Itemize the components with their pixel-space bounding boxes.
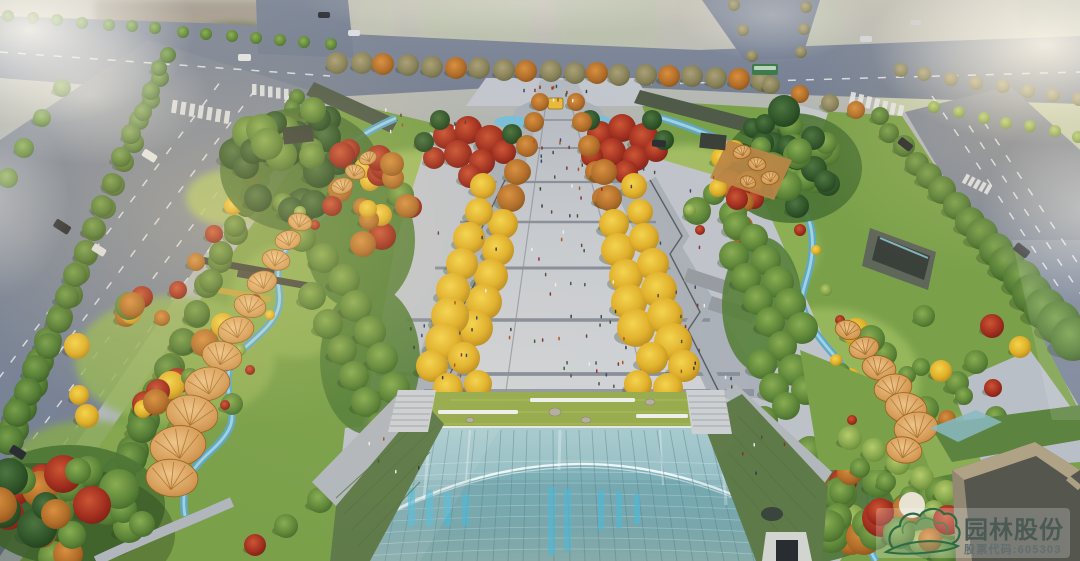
svg-text:股票代码:605303: 股票代码:605303 — [964, 542, 1062, 556]
svg-text:园林股份: 园林股份 — [964, 517, 1064, 544]
